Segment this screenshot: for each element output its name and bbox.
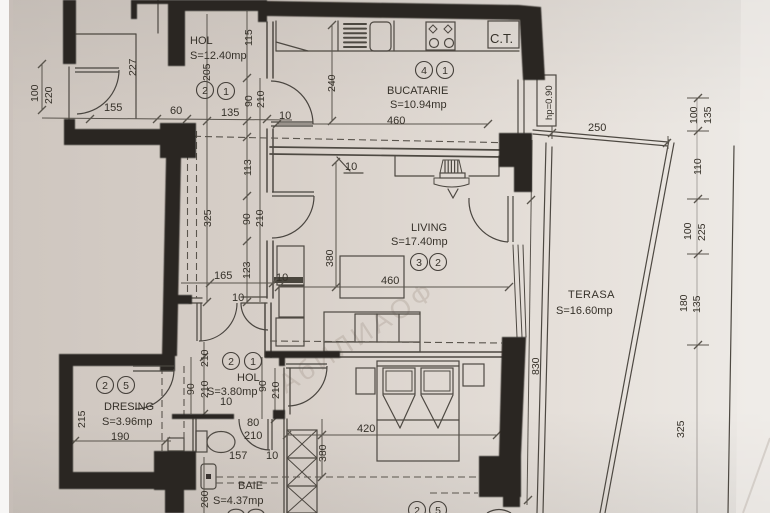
svg-text:225: 225 [696, 223, 708, 241]
svg-text:210: 210 [199, 349, 211, 367]
svg-text:S=16.60mp: S=16.60mp [556, 305, 613, 317]
svg-text:115: 115 [243, 29, 255, 46]
svg-text:10: 10 [279, 110, 291, 122]
svg-text:S=12.40mp: S=12.40mp [190, 50, 247, 62]
svg-text:215: 215 [76, 410, 88, 428]
svg-text:TERASA: TERASA [568, 289, 615, 301]
svg-text:210: 210 [255, 90, 267, 108]
svg-text:165: 165 [214, 270, 232, 282]
svg-text:LIVING: LIVING [411, 222, 447, 234]
svg-text:380: 380 [317, 444, 329, 462]
svg-text:HOL: HOL [237, 372, 260, 384]
svg-text:100: 100 [29, 84, 41, 102]
svg-text:110: 110 [692, 158, 704, 175]
svg-text:5: 5 [435, 505, 441, 513]
svg-text:100: 100 [682, 222, 694, 240]
svg-text:220: 220 [43, 86, 55, 104]
svg-text:1: 1 [223, 86, 229, 98]
svg-text:S=4.37mp: S=4.37mp [213, 495, 263, 507]
svg-text:2: 2 [202, 85, 208, 97]
svg-text:205: 205 [201, 63, 213, 81]
svg-text:260: 260 [199, 490, 211, 508]
svg-text:60: 60 [170, 105, 182, 117]
svg-text:10: 10 [220, 396, 232, 408]
svg-text:2: 2 [414, 505, 420, 513]
svg-text:157: 157 [229, 450, 247, 462]
svg-text:BAIE: BAIE [238, 480, 263, 492]
svg-text:4: 4 [421, 65, 427, 77]
svg-text:113: 113 [242, 159, 254, 176]
svg-text:hp=0.90: hp=0.90 [544, 85, 555, 120]
svg-text:2: 2 [102, 380, 108, 392]
svg-text:S=3.96mp: S=3.96mp [102, 416, 152, 428]
svg-text:90: 90 [185, 383, 197, 395]
svg-text:3: 3 [416, 257, 422, 269]
svg-text:100: 100 [688, 106, 700, 124]
svg-text:227: 227 [127, 58, 139, 76]
svg-text:180: 180 [678, 294, 690, 312]
svg-text:S=10.94mp: S=10.94mp [390, 99, 447, 111]
svg-text:123: 123 [241, 261, 253, 279]
svg-text:10: 10 [276, 272, 288, 284]
svg-text:155: 155 [104, 102, 122, 114]
svg-text:C.T.: C.T. [490, 31, 513, 46]
svg-text:420: 420 [357, 423, 375, 435]
svg-text:210: 210 [244, 430, 262, 442]
svg-text:80: 80 [247, 417, 259, 429]
svg-text:325: 325 [202, 209, 214, 227]
svg-text:250: 250 [588, 122, 606, 134]
svg-text:HOL: HOL [190, 35, 213, 47]
svg-text:830: 830 [530, 357, 542, 375]
svg-text:135: 135 [691, 295, 703, 313]
svg-text:380: 380 [324, 249, 336, 267]
svg-text:210: 210 [254, 209, 266, 227]
svg-text:1: 1 [442, 65, 448, 77]
svg-text:325: 325 [675, 420, 687, 438]
svg-text:10: 10 [345, 161, 357, 173]
svg-text:210: 210 [270, 381, 282, 399]
svg-text:190: 190 [111, 431, 129, 443]
svg-text:90: 90 [241, 213, 253, 225]
svg-text:5: 5 [123, 380, 129, 392]
svg-text:460: 460 [387, 115, 405, 127]
svg-text:135: 135 [702, 106, 714, 124]
svg-text:10: 10 [266, 450, 278, 462]
svg-text:135: 135 [221, 107, 239, 119]
svg-text:90: 90 [243, 95, 255, 107]
svg-text:DRESING: DRESING [104, 401, 154, 413]
svg-text:2: 2 [435, 257, 441, 269]
svg-text:S=17.40mp: S=17.40mp [391, 236, 448, 248]
svg-text:460: 460 [381, 275, 399, 287]
svg-text:2: 2 [228, 356, 234, 368]
svg-text:240: 240 [326, 74, 338, 92]
svg-text:1: 1 [250, 356, 256, 368]
svg-text:10: 10 [232, 292, 244, 304]
svg-text:BUCATARIE: BUCATARIE [387, 85, 448, 97]
